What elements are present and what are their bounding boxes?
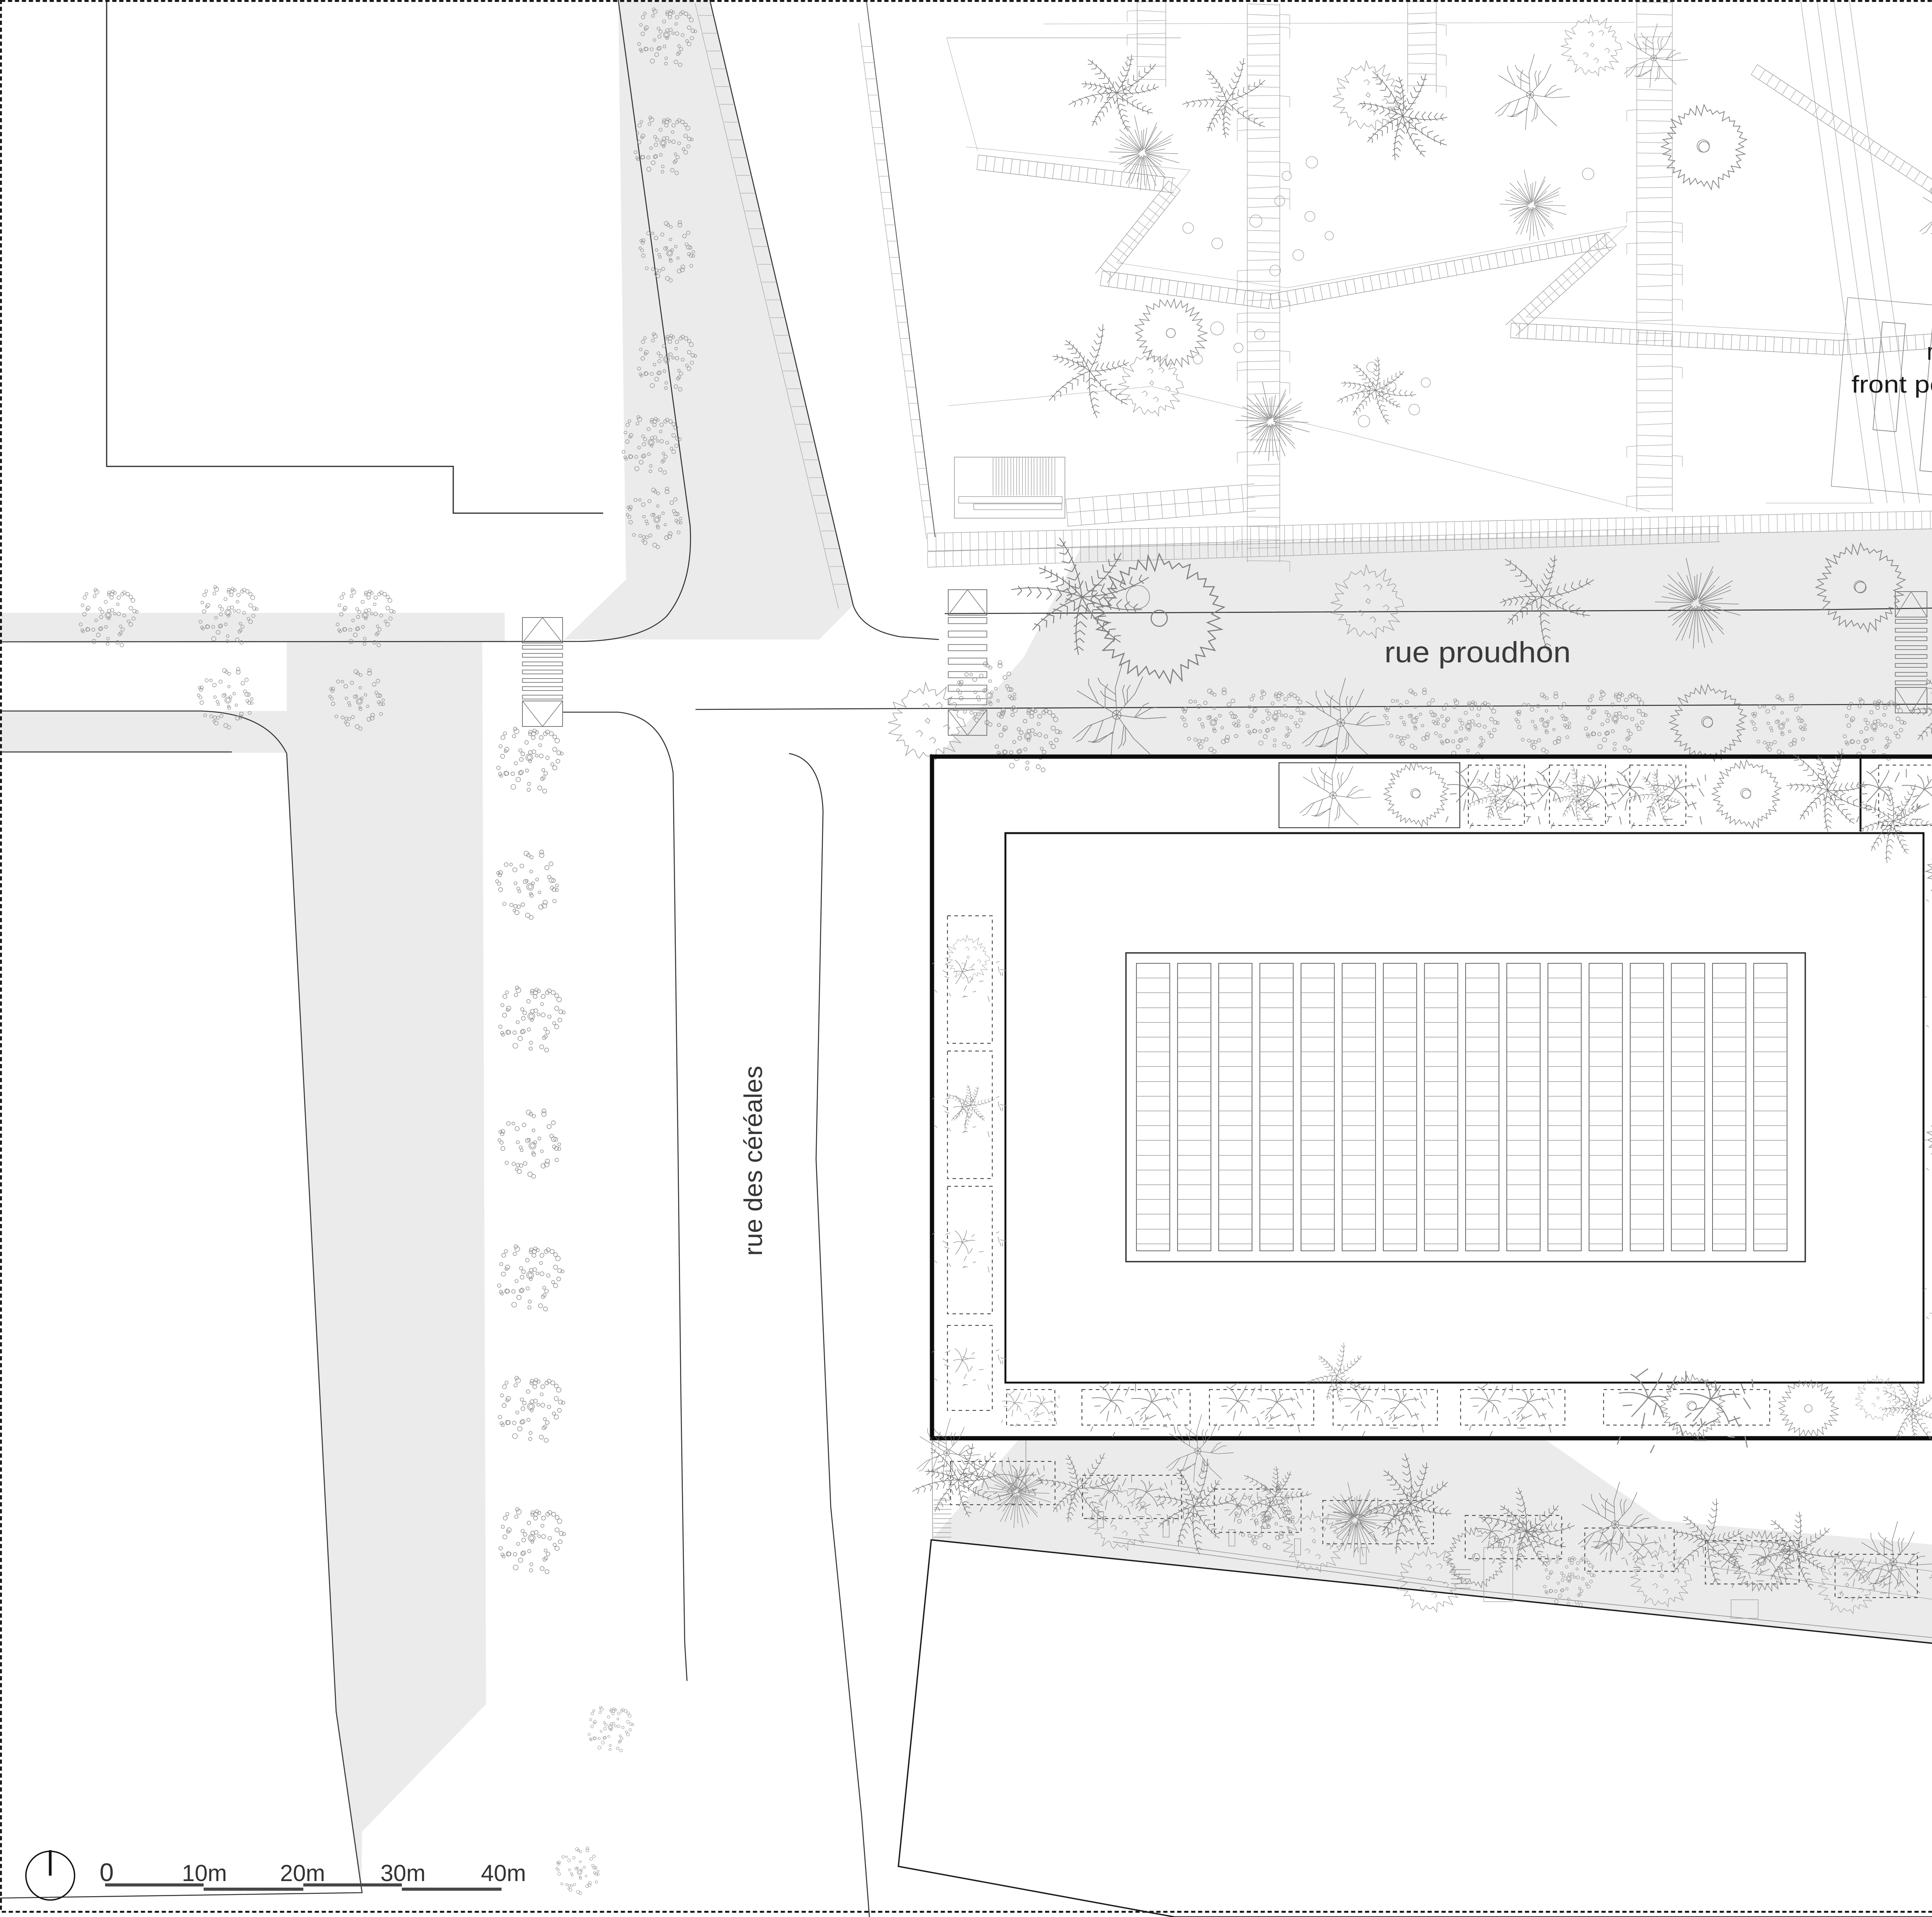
svg-text:rue des céréales: rue des céréales [739,1066,767,1256]
svg-text:20m: 20m [280,1860,325,1886]
svg-text:40m: 40m [481,1860,526,1886]
svg-text:m: m [1927,338,1932,365]
svg-text:10m: 10m [182,1860,227,1886]
svg-text:30m: 30m [381,1860,426,1886]
svg-text:front populaire: front populaire [1852,371,1932,398]
svg-text:rue proudhon: rue proudhon [1384,636,1571,669]
svg-text:0: 0 [100,1858,114,1886]
